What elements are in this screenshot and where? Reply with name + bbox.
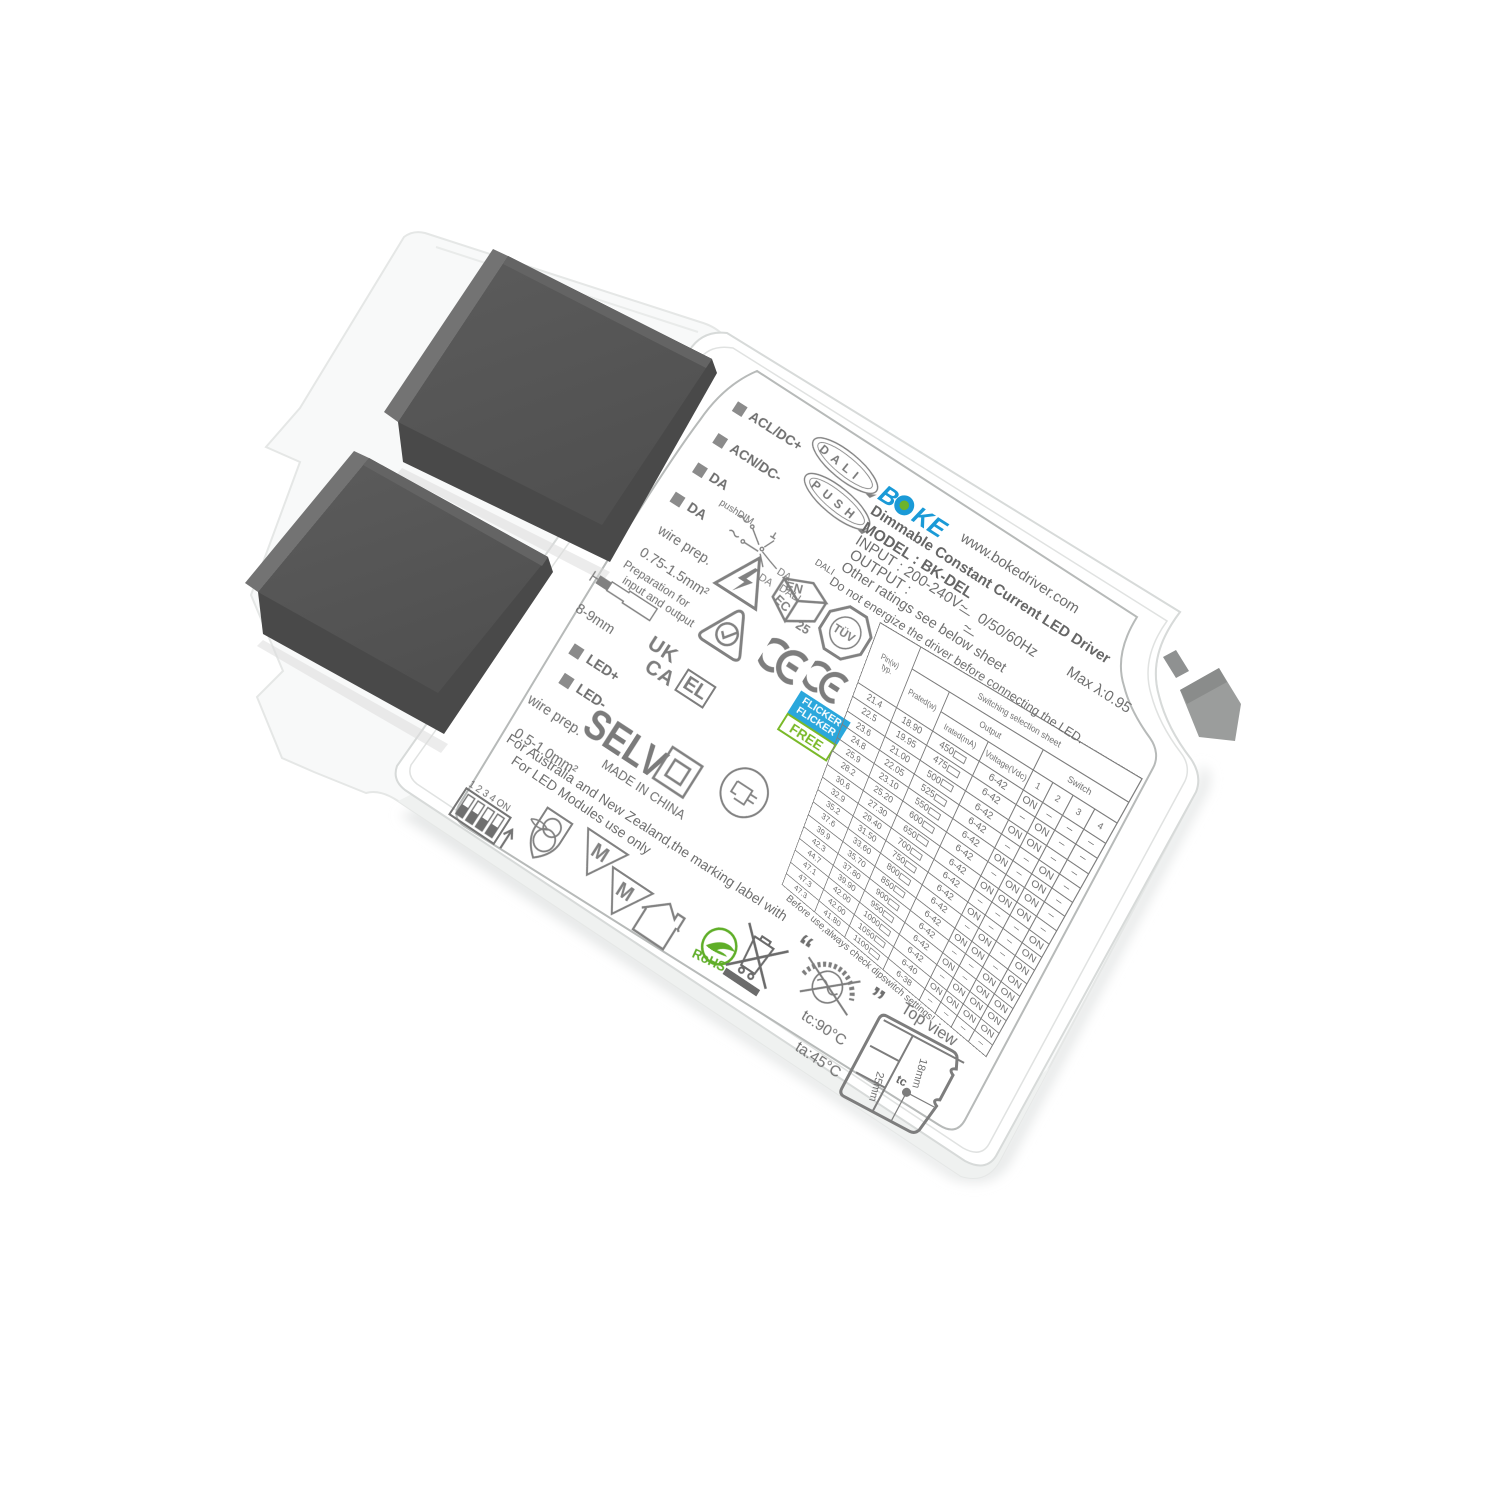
svg-text:25mm: 25mm bbox=[866, 1070, 886, 1103]
svg-text:EN: EN bbox=[784, 578, 805, 597]
svg-text:18mm: 18mm bbox=[909, 1057, 929, 1090]
svg-text:TÜV: TÜV bbox=[830, 621, 857, 646]
svg-text:tc: tc bbox=[894, 1072, 910, 1090]
